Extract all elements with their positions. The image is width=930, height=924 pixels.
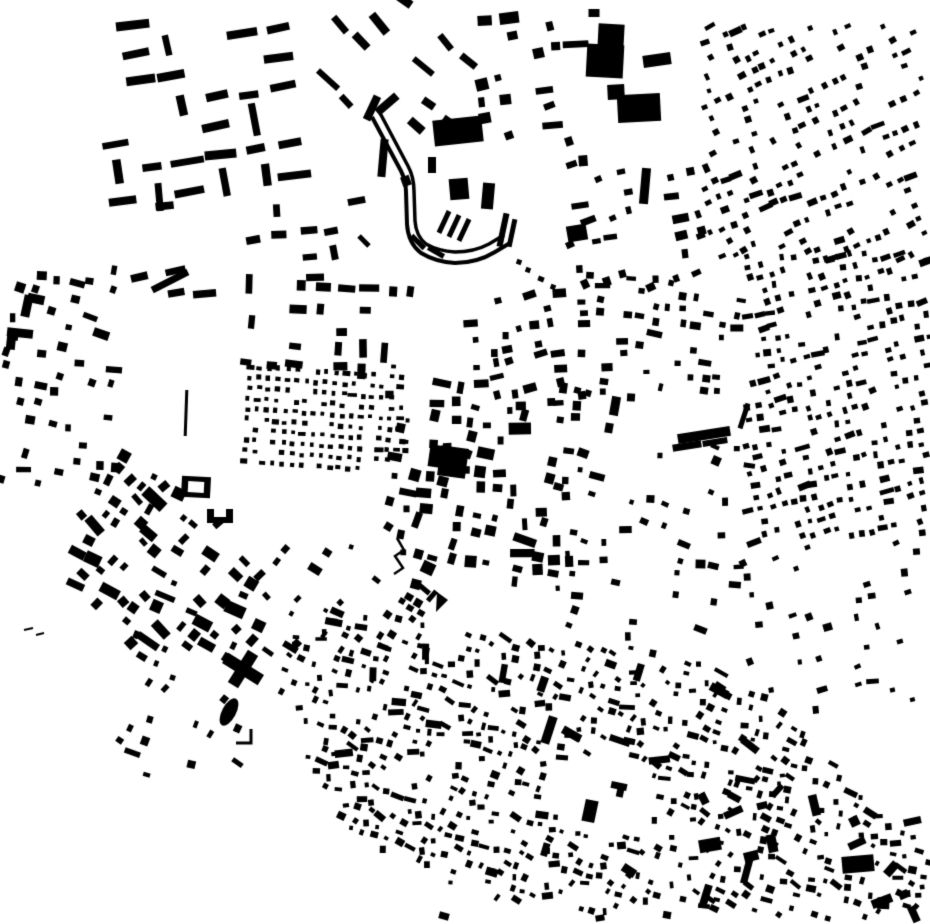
screenshot-root [0, 0, 930, 924]
building-footprint-canvas [0, 0, 930, 924]
map-stage [0, 0, 930, 924]
